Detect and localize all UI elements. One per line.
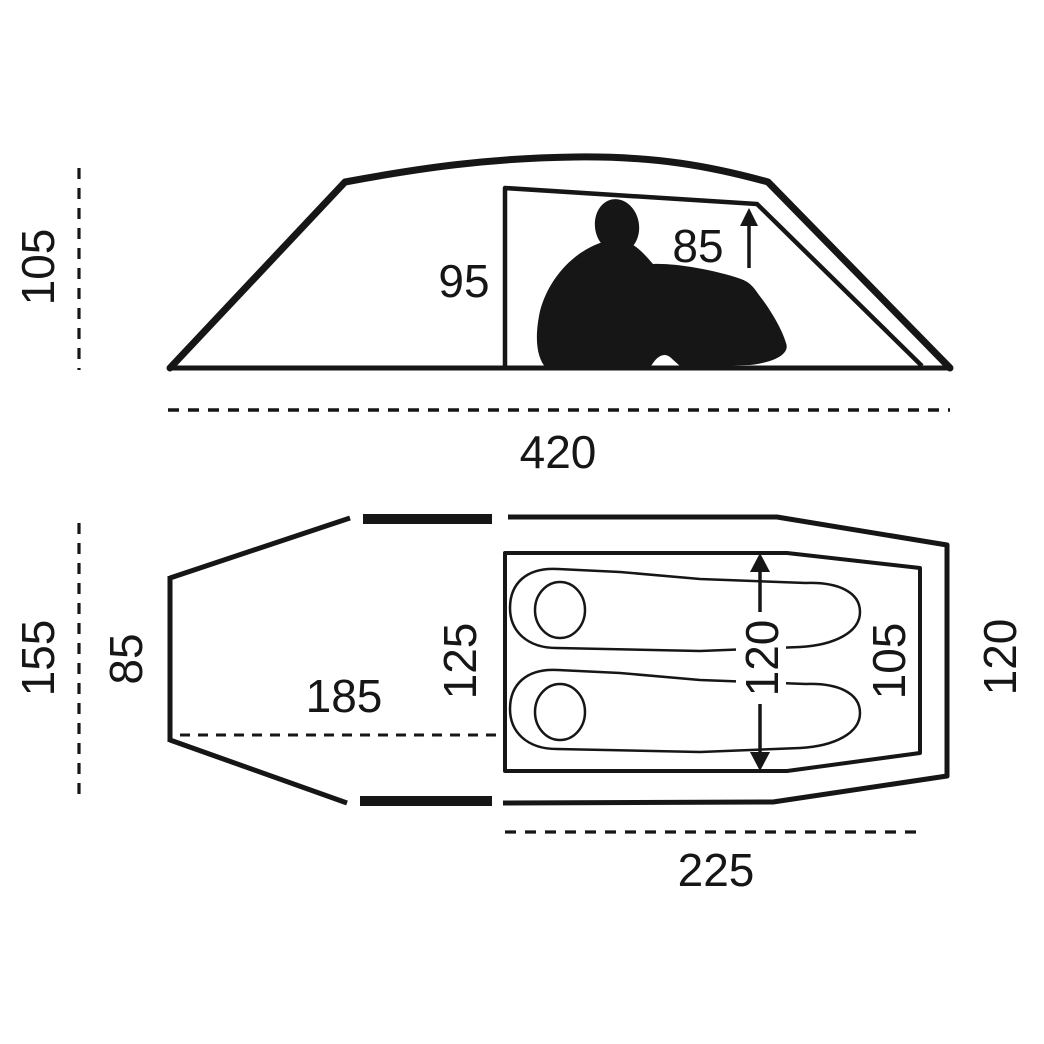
overall-height-label: 105: [12, 229, 64, 306]
inner-height-front-label: 95: [438, 255, 489, 307]
sleeping-bag-bottom-hood: [535, 684, 585, 740]
diagram-canvas: 105 95 85 420: [0, 0, 1044, 1044]
footprint-bottom-left-slant: [170, 740, 347, 803]
inner-width-arrow-label: 120: [736, 620, 788, 697]
vestibule-width-label: 85: [100, 633, 152, 684]
inner-width-foot-label: 105: [863, 623, 915, 700]
sleeping-bag-bottom: [510, 670, 860, 752]
sleeping-bag-top: [510, 569, 860, 651]
inner-width-head-label: 125: [434, 623, 486, 700]
overall-width-label: 155: [12, 620, 64, 697]
up-arrow-icon: [740, 208, 758, 268]
width-arrow-head-bottom: [750, 752, 770, 771]
vestibule-length-label: 185: [306, 670, 383, 722]
top-view: 155 85 185 125 120 105 120 225: [12, 517, 1026, 896]
up-arrow-head: [740, 208, 758, 226]
width-arrow-head-top: [750, 553, 770, 572]
inner-length-label: 225: [678, 844, 755, 896]
footprint-top-left-slant: [170, 518, 350, 578]
outer-width-foot-label: 120: [974, 619, 1026, 696]
inner-height-rear-label: 85: [672, 220, 723, 272]
overall-length-label: 420: [520, 426, 597, 478]
tent-dimension-diagram: 105 95 85 420: [0, 0, 1044, 1044]
sleeping-bag-top-hood: [535, 582, 585, 638]
side-view: 105 95 85 420: [12, 157, 952, 478]
